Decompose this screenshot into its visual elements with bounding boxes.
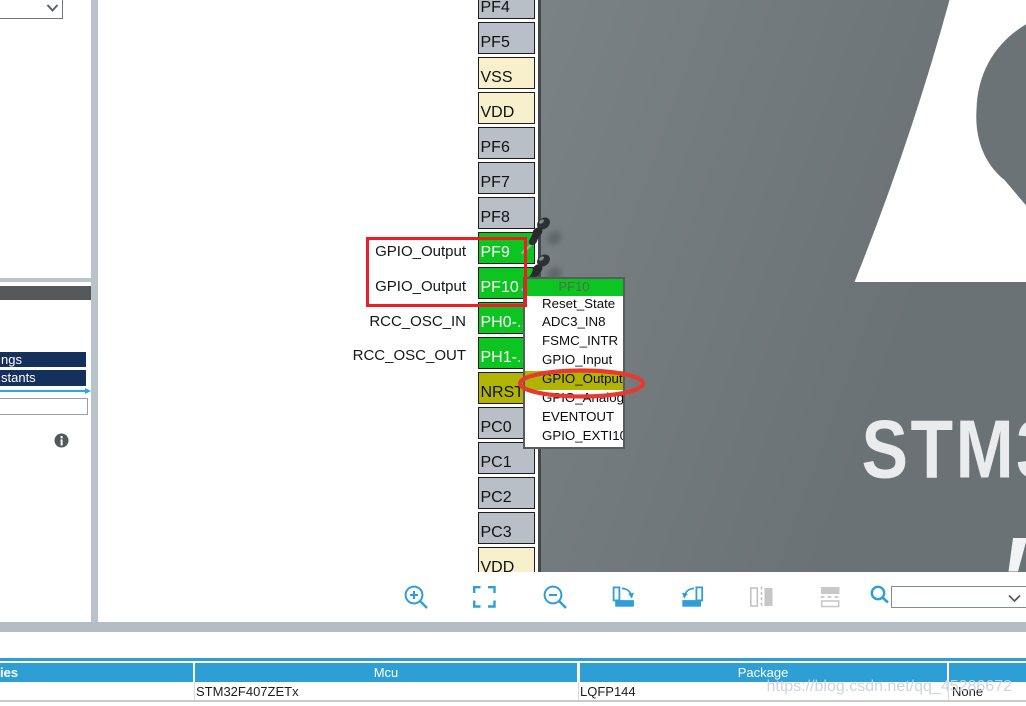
svg-text:STM3: STM3 <box>861 404 1026 496</box>
